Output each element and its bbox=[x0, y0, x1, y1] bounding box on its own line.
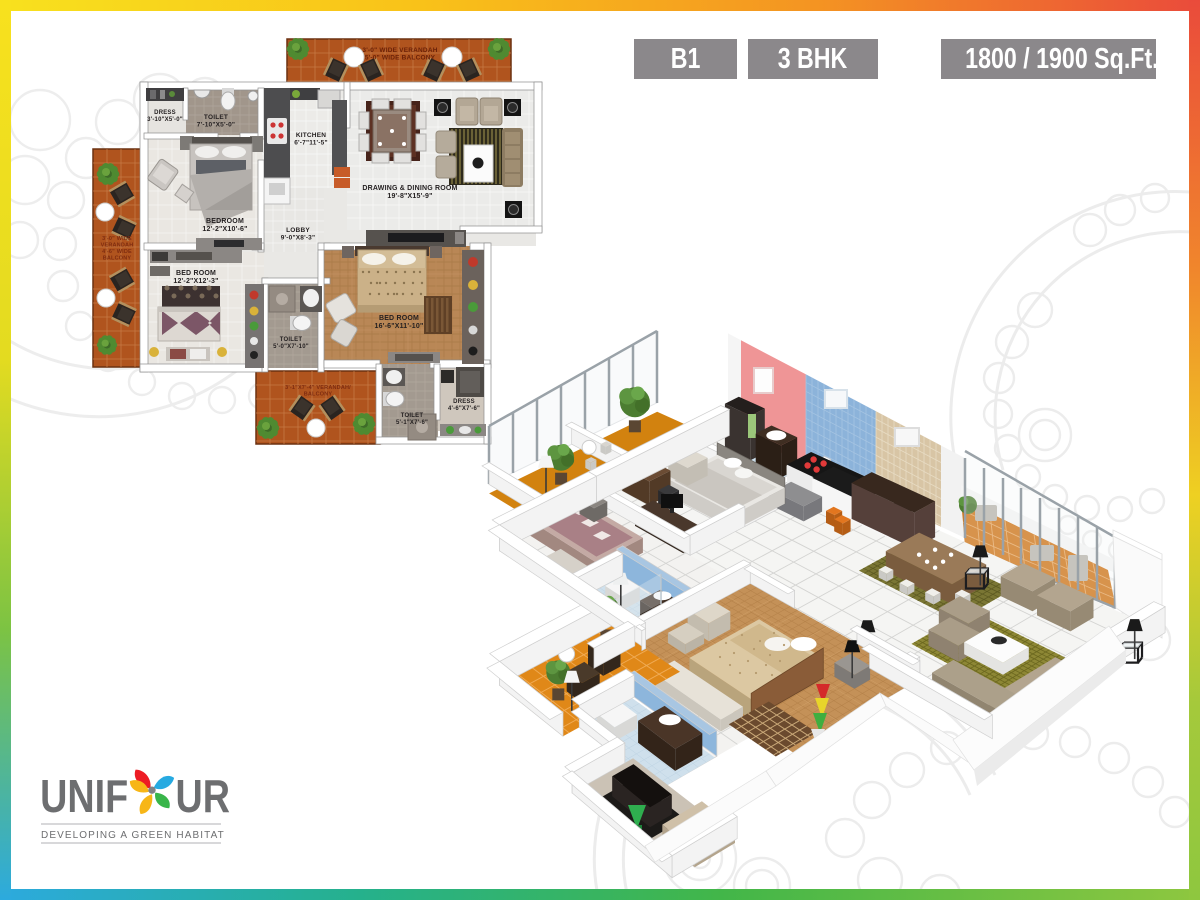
svg-text:UNIF: UNIF bbox=[41, 770, 128, 821]
svg-text:DEVELOPING A GREEN HABITAT: DEVELOPING A GREEN HABITAT bbox=[41, 830, 225, 841]
svg-text:UR: UR bbox=[175, 770, 229, 821]
